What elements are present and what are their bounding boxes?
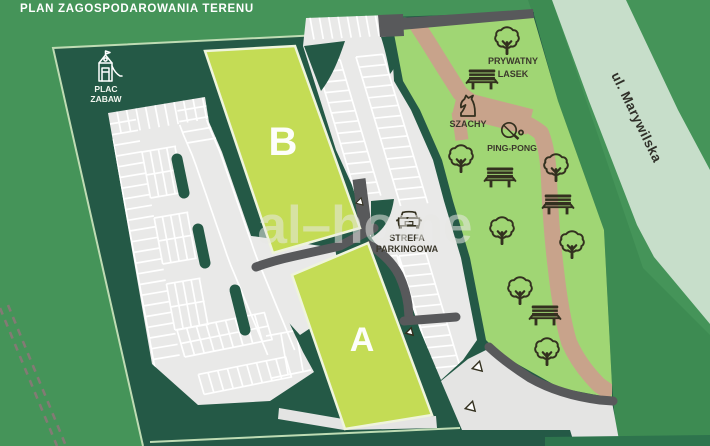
svg-text:B: B xyxy=(269,120,298,164)
svg-text:SZACHY: SZACHY xyxy=(449,119,486,129)
svg-text:al–home: al–home xyxy=(257,196,472,255)
svg-text:A: A xyxy=(350,321,375,359)
svg-text:PLAN ZAGOSPODAROWANIA TERENU: PLAN ZAGOSPODAROWANIA TERENU xyxy=(20,3,254,15)
svg-text:PLAC: PLAC xyxy=(94,84,117,94)
svg-text:PING-PONG: PING-PONG xyxy=(487,143,537,153)
svg-text:LASEK: LASEK xyxy=(498,69,529,79)
svg-text:ZABAW: ZABAW xyxy=(90,94,122,104)
svg-text:PRYWATNY: PRYWATNY xyxy=(488,56,538,66)
